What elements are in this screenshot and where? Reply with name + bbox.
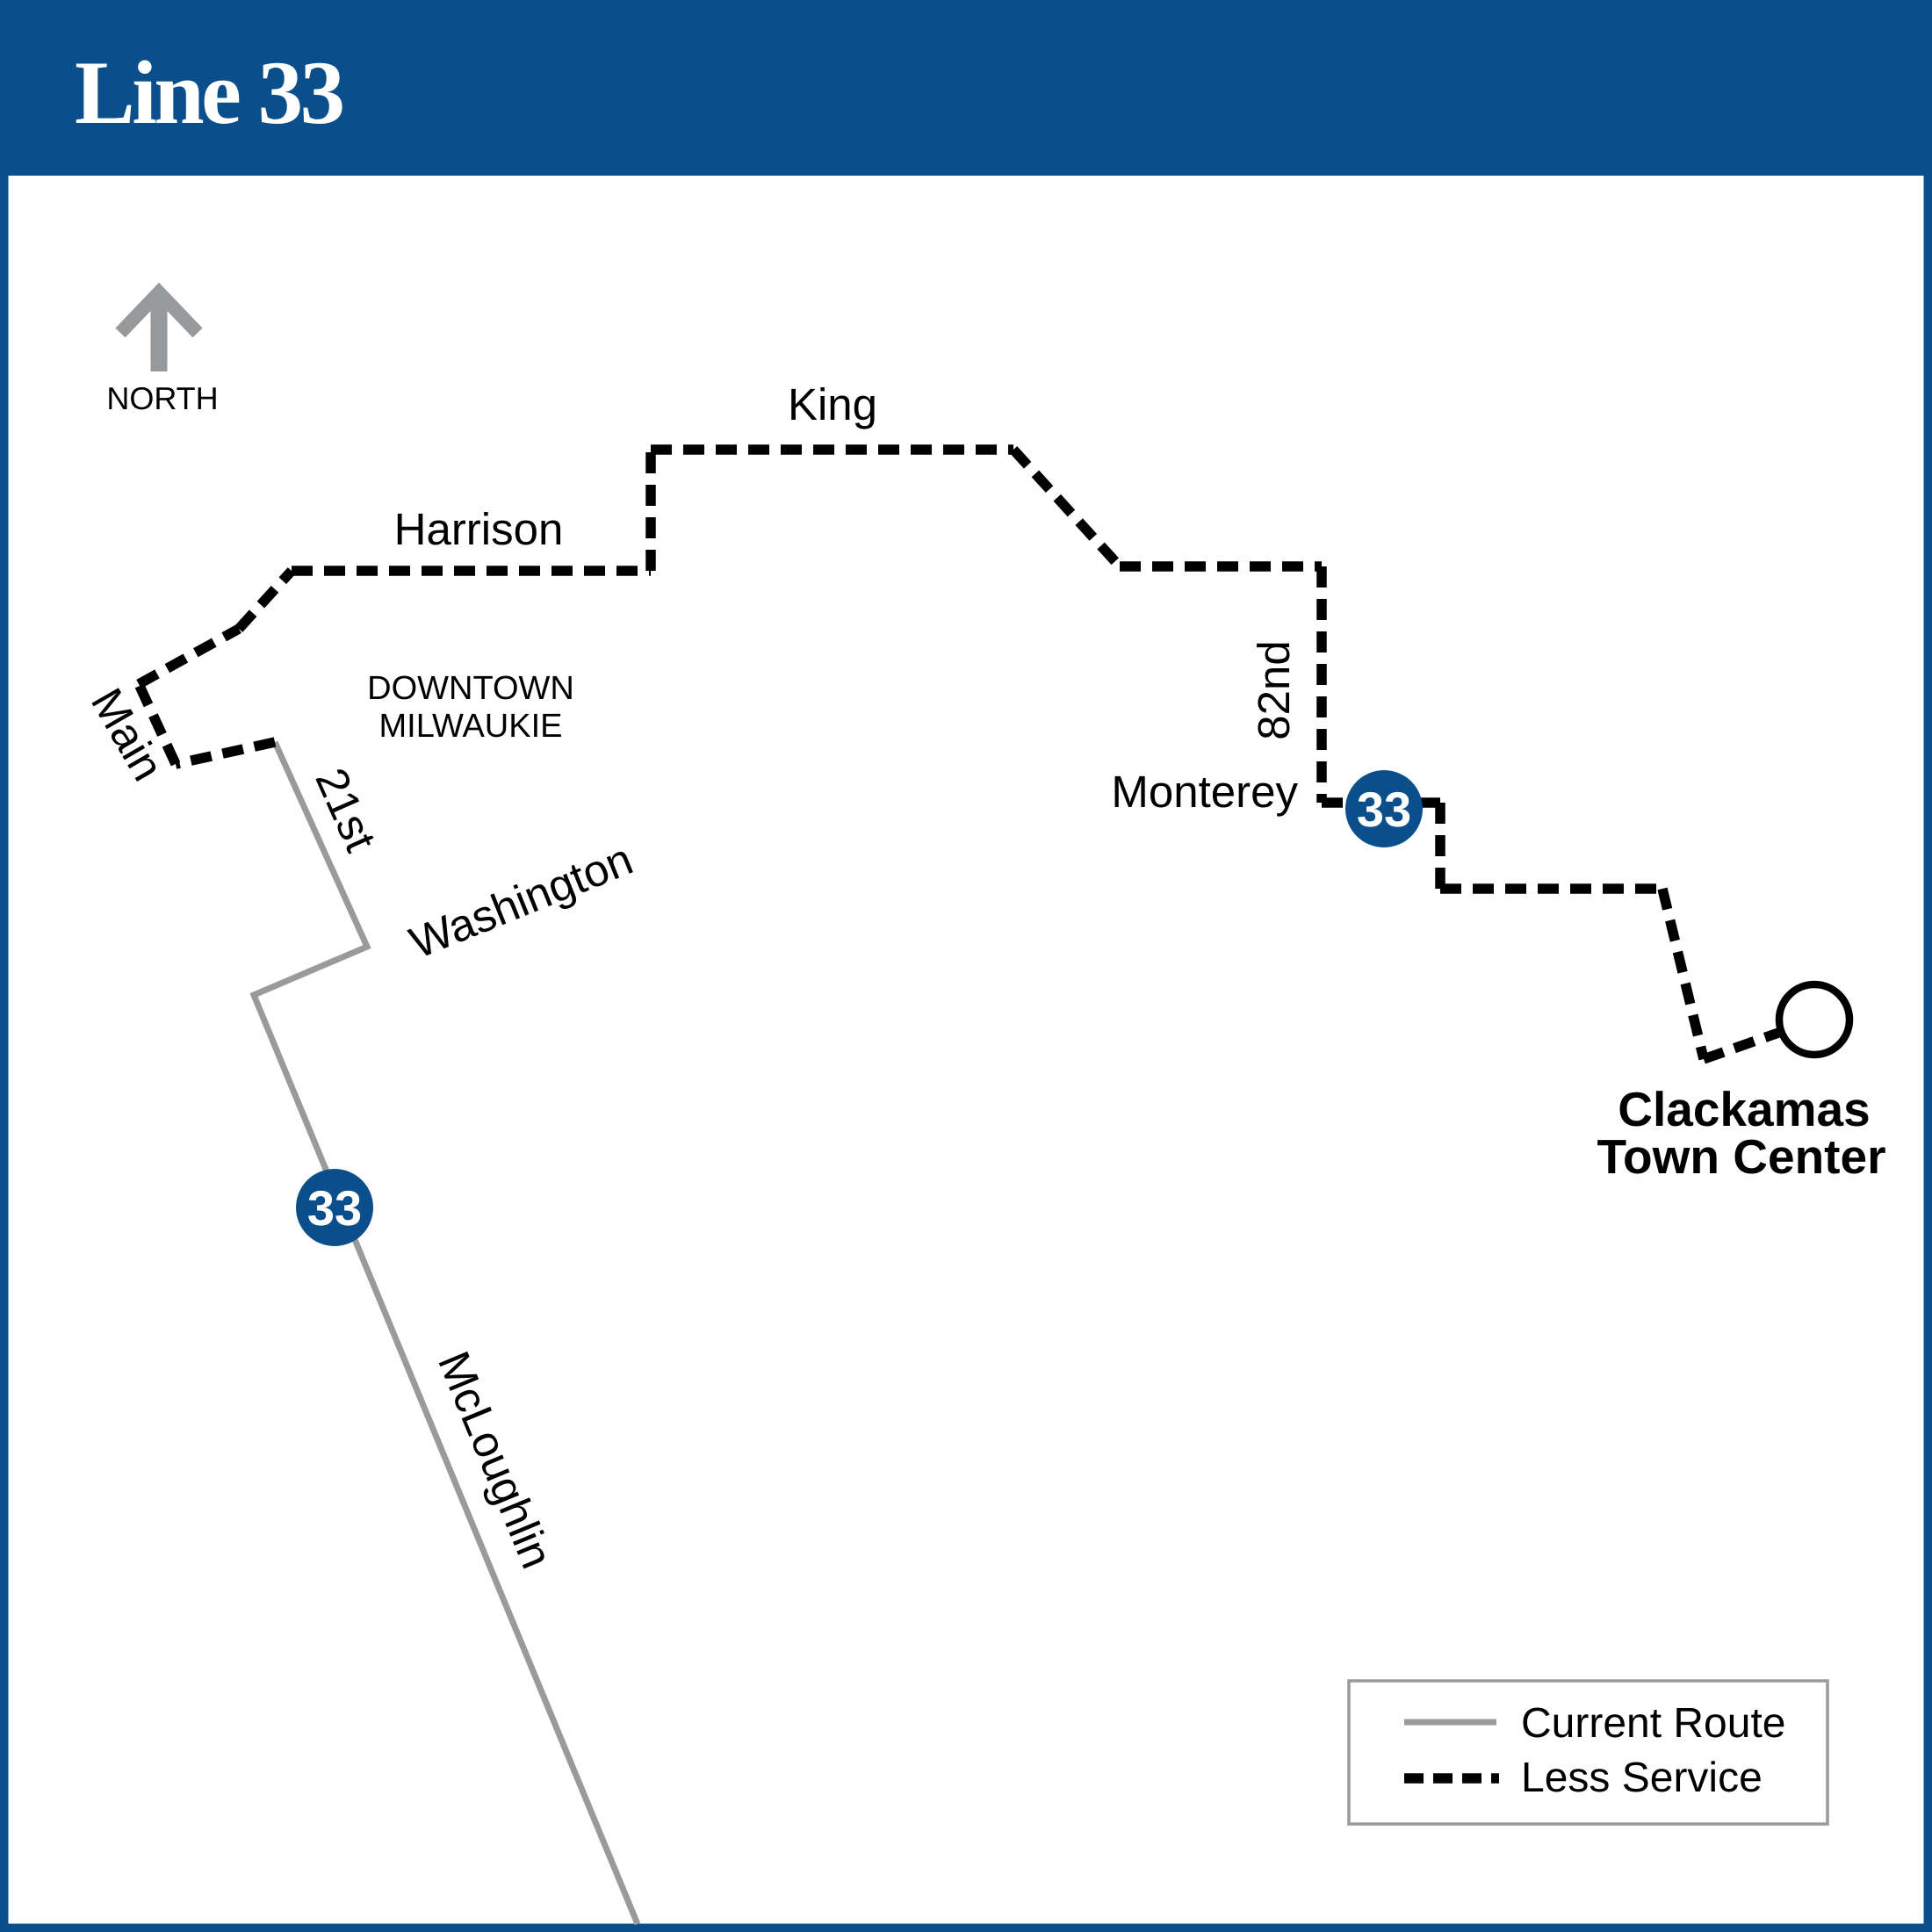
svg-text:33: 33 xyxy=(307,1180,362,1236)
svg-text:33: 33 xyxy=(1357,782,1411,837)
svg-text:Less Service: Less Service xyxy=(1521,1755,1763,1801)
svg-text:Harrison: Harrison xyxy=(394,504,564,554)
svg-text:MILWAUKIE: MILWAUKIE xyxy=(378,708,562,745)
svg-text:Town Center: Town Center xyxy=(1597,1129,1886,1184)
svg-text:Monterey: Monterey xyxy=(1111,767,1298,817)
svg-text:Clackamas: Clackamas xyxy=(1618,1082,1870,1136)
svg-text:NORTH: NORTH xyxy=(106,380,218,416)
svg-text:DOWNTOWN: DOWNTOWN xyxy=(367,670,574,707)
svg-text:82nd: 82nd xyxy=(1249,640,1299,739)
svg-text:Line 33: Line 33 xyxy=(75,43,342,143)
svg-text:King: King xyxy=(788,379,877,429)
svg-text:Current Route: Current Route xyxy=(1521,1700,1785,1747)
